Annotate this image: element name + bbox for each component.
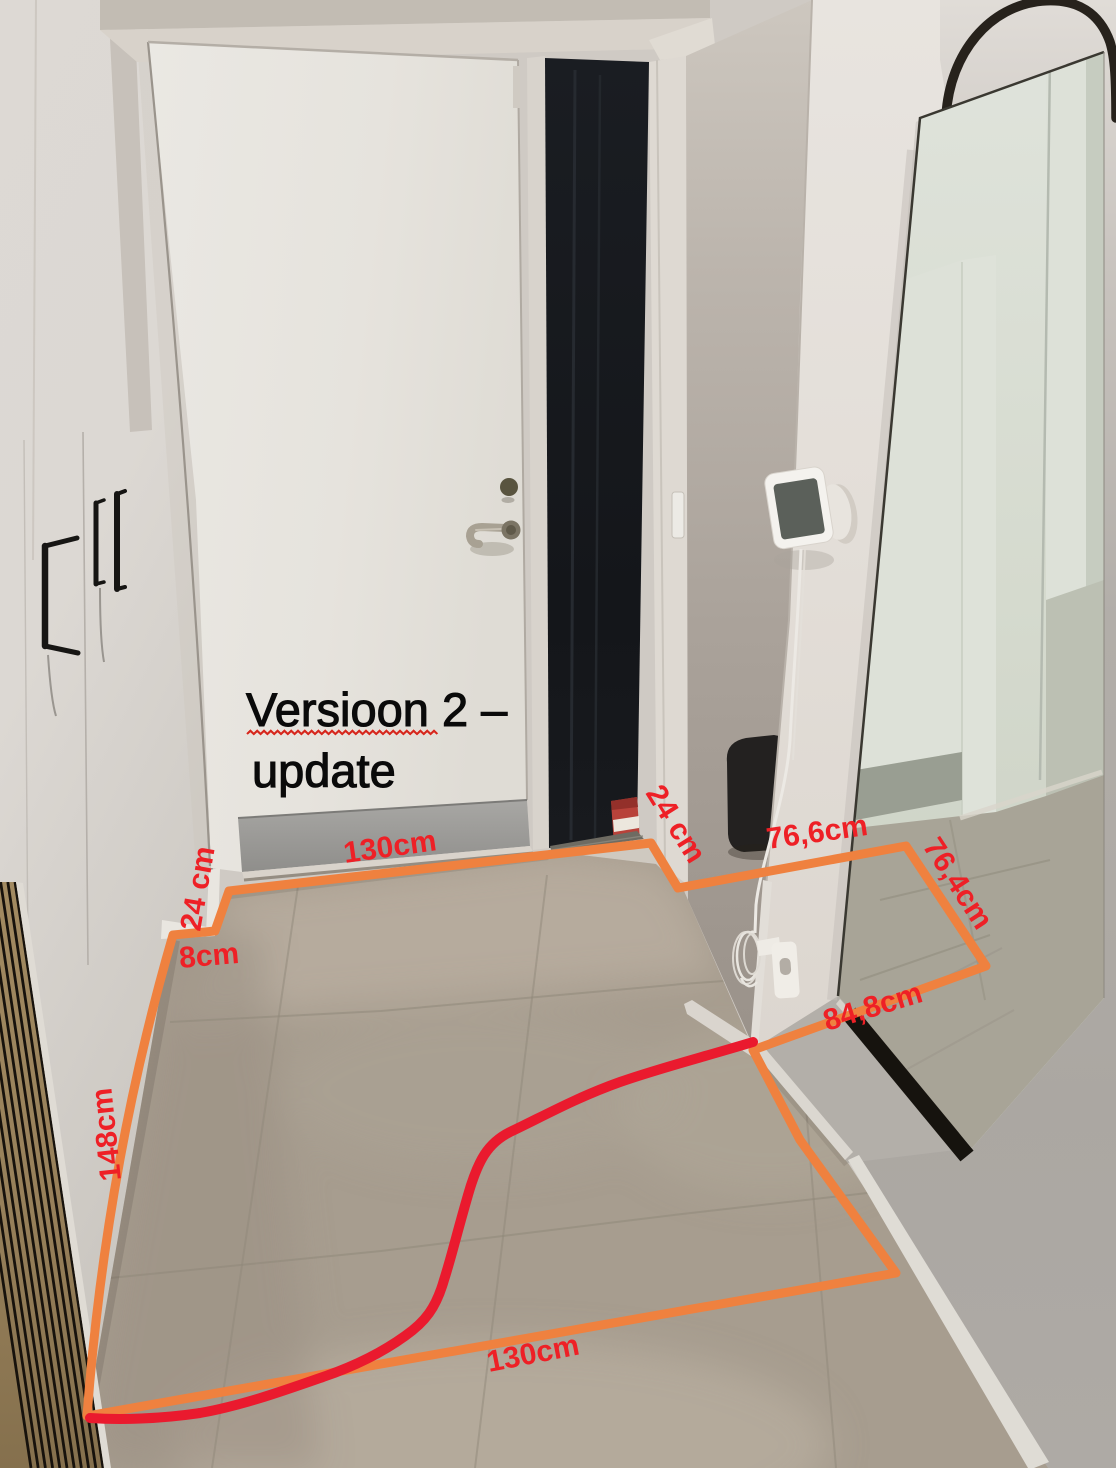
svg-text:8cm: 8cm xyxy=(178,937,241,975)
svg-text:Versioon 2 –: Versioon 2 – xyxy=(246,683,508,736)
svg-text:update: update xyxy=(252,744,396,797)
